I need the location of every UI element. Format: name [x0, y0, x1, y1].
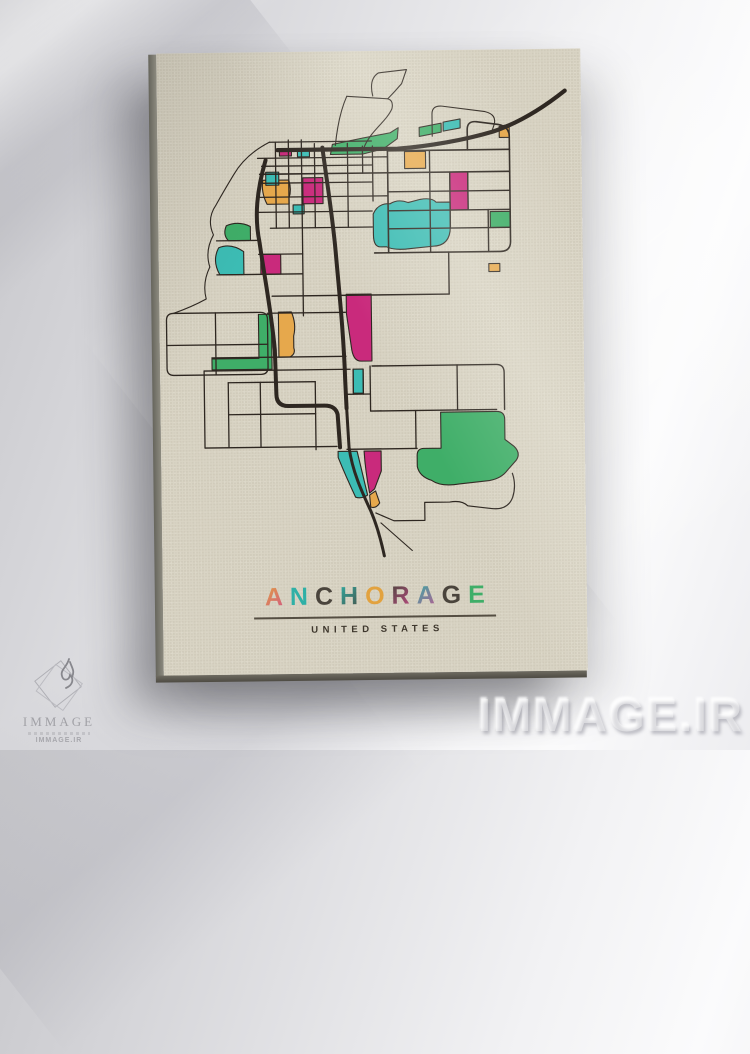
map-parcel-green: [211, 314, 272, 370]
map-parcel-magenta: [364, 451, 382, 493]
scene: { "artwork": { "subtitle": "UNITED STATE…: [0, 0, 750, 750]
map-road: [372, 146, 373, 201]
map-road: [258, 157, 388, 159]
map-road: [450, 172, 451, 228]
immage-logo: IMMAGE IMMAGE.IR: [4, 658, 114, 744]
map-parcel-teal: [215, 246, 244, 275]
map-road: [370, 366, 371, 411]
map-road: [371, 70, 406, 99]
map-parcel-orange: [278, 312, 295, 357]
title-letter: N: [290, 583, 315, 611]
map-road: [335, 96, 348, 145]
title-letter: H: [340, 582, 365, 610]
title-letter: C: [315, 582, 340, 610]
map-road: [229, 414, 316, 415]
map-parcel-teal: [443, 119, 460, 131]
title-block: ANCHORAGE UNITED STATES: [163, 581, 588, 637]
map-parcel-green: [419, 123, 441, 136]
map-road: [449, 252, 450, 294]
map-parcel-teal: [353, 369, 363, 393]
map-parcel-teal: [373, 198, 451, 249]
map-parcel-green: [490, 211, 510, 227]
map-road: [347, 448, 417, 449]
map-road: [167, 344, 268, 345]
map-title: ANCHORAGE: [163, 581, 587, 611]
map-parcel-green: [417, 411, 519, 485]
title-letter: G: [442, 581, 469, 609]
map-road: [270, 227, 372, 228]
title-letter: E: [468, 581, 492, 609]
title-divider: [254, 615, 496, 620]
map-parcel-green: [225, 223, 251, 241]
map-road: [371, 409, 497, 411]
map-road: [217, 240, 259, 241]
canvas-face: ANCHORAGE UNITED STATES: [156, 48, 588, 675]
logo-site: IMMAGE.IR: [4, 737, 114, 744]
map-road: [275, 142, 276, 228]
watermark: IMMAGE.IR: [478, 688, 744, 742]
logo-quill-icon: [55, 658, 81, 692]
map-road: [204, 371, 205, 448]
map-parcel-orange: [370, 491, 380, 508]
map-road: [372, 364, 505, 411]
logo-tagline-line: [28, 732, 90, 735]
map-parcel-orange: [489, 263, 500, 271]
map-road: [228, 382, 315, 383]
map-road: [488, 210, 489, 252]
logo-name: IMMAGE: [4, 714, 114, 730]
title-letter: O: [365, 582, 392, 610]
map-parcel-orange: [404, 151, 425, 168]
map-road: [315, 382, 316, 450]
map-road: [262, 165, 372, 166]
map-road: [457, 365, 458, 410]
title-letter: A: [265, 583, 290, 611]
map-road: [215, 313, 216, 375]
map-road: [205, 446, 337, 448]
map-road: [314, 144, 315, 228]
map-road: [388, 190, 510, 191]
map-road: [381, 523, 412, 551]
map-parcel-magenta: [303, 178, 323, 204]
map-road: [259, 254, 303, 255]
title-letter: A: [416, 581, 441, 609]
canvas-print: ANCHORAGE UNITED STATES: [156, 48, 588, 675]
title-letter: R: [391, 581, 416, 609]
map-road: [347, 143, 348, 227]
map-road: [212, 356, 346, 358]
map-parcel-magenta: [346, 294, 372, 361]
map-road: [260, 171, 510, 174]
immage-logo-mark-icon: [31, 658, 87, 710]
